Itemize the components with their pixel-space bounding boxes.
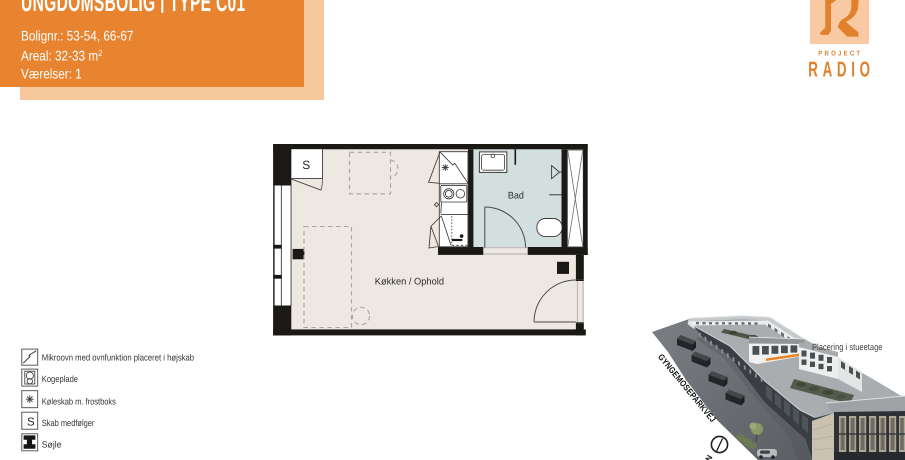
svg-text:S: S — [27, 416, 35, 428]
svg-text:Køkken / Ophold: Køkken / Ophold — [375, 277, 444, 288]
svg-text:Mikroovn med ovnfunktion place: Mikroovn med ovnfunktion placeret i højs… — [42, 353, 194, 363]
svg-text:UNGDOMSBOLIG | TYPE C01: UNGDOMSBOLIG | TYPE C01 — [21, 0, 246, 17]
svg-text:Køleskab m. frostboks: Køleskab m. frostboks — [42, 396, 117, 406]
svg-text:Kogeplade: Kogeplade — [42, 374, 78, 384]
svg-text:N: N — [704, 453, 715, 460]
svg-text:Søjle: Søjle — [42, 439, 62, 449]
svg-text:S: S — [302, 158, 310, 172]
svg-text:Bad: Bad — [508, 191, 524, 202]
svg-text:Værelser: 1: Værelser: 1 — [21, 66, 82, 82]
svg-text:PROJECT: PROJECT — [818, 51, 862, 58]
svg-text:RADIO: RADIO — [808, 58, 875, 82]
svg-text:Placering i stueetage: Placering i stueetage — [812, 342, 883, 352]
svg-text:Bolignr.: 53-54, 66-67: Bolignr.: 53-54, 66-67 — [21, 28, 134, 44]
svg-text:Areal: 32-33 m2: Areal: 32-33 m2 — [21, 47, 102, 63]
svg-text:Skab medfølger: Skab medfølger — [42, 418, 95, 428]
